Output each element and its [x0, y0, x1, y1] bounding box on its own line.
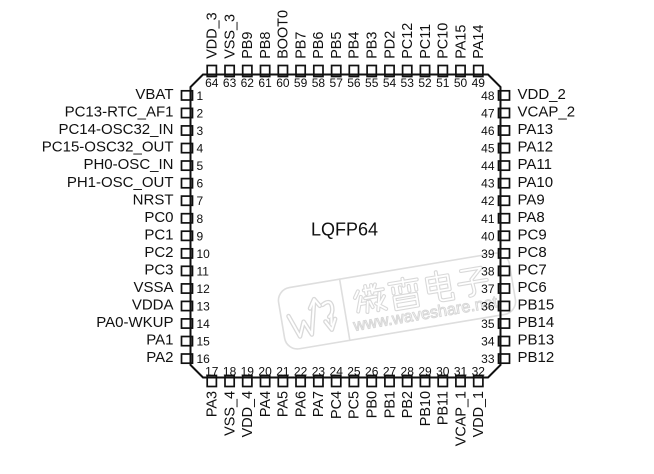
- svg-text:PA10: PA10: [518, 174, 554, 191]
- svg-text:42: 42: [481, 194, 495, 208]
- svg-text:PA12: PA12: [518, 139, 554, 156]
- svg-text:PC8: PC8: [518, 244, 547, 261]
- svg-text:51: 51: [436, 76, 450, 90]
- svg-text:59: 59: [294, 76, 308, 90]
- svg-text:47: 47: [481, 107, 495, 121]
- svg-text:35: 35: [481, 317, 495, 331]
- svg-text:52: 52: [418, 76, 432, 90]
- svg-text:PC14-OSC32_IN: PC14-OSC32_IN: [58, 121, 173, 138]
- svg-text:PA2: PA2: [146, 349, 173, 366]
- svg-text:PA4: PA4: [258, 391, 274, 417]
- svg-text:VDDA: VDDA: [132, 297, 174, 314]
- svg-text:PC5: PC5: [347, 391, 363, 419]
- svg-text:PB1: PB1: [382, 391, 398, 418]
- svg-text:PA8: PA8: [518, 209, 545, 226]
- svg-text:BOOT0: BOOT0: [276, 10, 292, 59]
- svg-text:VSS_3: VSS_3: [222, 14, 238, 59]
- svg-text:25: 25: [347, 365, 361, 379]
- svg-text:PA9: PA9: [518, 191, 545, 208]
- svg-text:11: 11: [197, 264, 210, 278]
- svg-text:PB4: PB4: [347, 32, 363, 59]
- svg-text:56: 56: [347, 76, 361, 90]
- svg-text:PC10: PC10: [436, 23, 452, 59]
- svg-text:40: 40: [481, 229, 495, 243]
- svg-text:PC13-RTC_AF1: PC13-RTC_AF1: [65, 104, 174, 121]
- svg-text:PB5: PB5: [329, 32, 345, 59]
- svg-text:8: 8: [197, 212, 204, 226]
- svg-text:LQFP64: LQFP64: [311, 220, 378, 240]
- svg-text:PC6: PC6: [518, 279, 547, 296]
- svg-text:PC7: PC7: [518, 262, 547, 279]
- svg-text:30: 30: [436, 365, 450, 379]
- svg-text:6: 6: [197, 177, 204, 191]
- svg-text:PB0: PB0: [365, 391, 381, 418]
- svg-text:PA5: PA5: [276, 391, 292, 417]
- svg-text:PC15-OSC32_OUT: PC15-OSC32_OUT: [42, 139, 174, 156]
- svg-text:62: 62: [241, 76, 255, 90]
- svg-text:16: 16: [197, 352, 211, 366]
- svg-text:45: 45: [481, 142, 495, 156]
- svg-text:PB10: PB10: [418, 391, 434, 426]
- svg-text:PB7: PB7: [293, 32, 309, 59]
- svg-text:PH0-OSC_IN: PH0-OSC_IN: [83, 156, 173, 173]
- svg-text:PB12: PB12: [518, 349, 555, 366]
- svg-text:PB8: PB8: [258, 32, 274, 59]
- svg-text:PA7: PA7: [311, 391, 327, 417]
- svg-text:58: 58: [312, 76, 326, 90]
- svg-text:55: 55: [365, 76, 379, 90]
- svg-text:63: 63: [223, 76, 237, 90]
- svg-text:37: 37: [481, 282, 495, 296]
- svg-text:43: 43: [481, 177, 495, 191]
- svg-text:PA14: PA14: [471, 25, 487, 59]
- svg-text:33: 33: [481, 352, 495, 366]
- svg-text:26: 26: [365, 365, 379, 379]
- svg-text:VBAT: VBAT: [135, 86, 173, 103]
- svg-text:VSS_4: VSS_4: [222, 391, 238, 436]
- svg-text:44: 44: [481, 159, 495, 173]
- svg-text:PC2: PC2: [144, 244, 173, 261]
- svg-text:PA15: PA15: [453, 25, 469, 59]
- svg-text:29: 29: [418, 365, 432, 379]
- svg-text:31: 31: [454, 365, 468, 379]
- svg-text:PA0-WKUP: PA0-WKUP: [96, 314, 173, 331]
- svg-text:21: 21: [276, 365, 290, 379]
- svg-text:PC1: PC1: [144, 226, 173, 243]
- svg-text:3: 3: [197, 124, 204, 138]
- svg-text:10: 10: [197, 247, 211, 261]
- svg-text:VCAP_1: VCAP_1: [453, 391, 469, 446]
- svg-text:VSSA: VSSA: [133, 279, 173, 296]
- svg-text:54: 54: [383, 76, 397, 90]
- svg-text:PC4: PC4: [329, 391, 345, 419]
- svg-text:PC0: PC0: [144, 209, 173, 226]
- svg-text:PC11: PC11: [418, 24, 434, 59]
- svg-text:PA6: PA6: [293, 391, 309, 417]
- svg-text:61: 61: [258, 76, 272, 90]
- svg-text:20: 20: [258, 365, 272, 379]
- svg-text:PB11: PB11: [436, 391, 452, 425]
- svg-text:41: 41: [481, 212, 495, 226]
- svg-text:VCAP_2: VCAP_2: [518, 104, 576, 121]
- svg-text:57: 57: [330, 76, 344, 90]
- svg-text:38: 38: [481, 264, 495, 278]
- svg-text:46: 46: [481, 124, 495, 138]
- svg-text:34: 34: [481, 335, 495, 349]
- svg-text:48: 48: [481, 89, 495, 103]
- svg-text:2: 2: [197, 107, 204, 121]
- svg-text:VDD_4: VDD_4: [240, 391, 256, 437]
- svg-text:PD2: PD2: [382, 31, 398, 59]
- svg-text:14: 14: [197, 317, 211, 331]
- svg-text:5: 5: [197, 159, 204, 173]
- svg-text:50: 50: [454, 76, 468, 90]
- svg-text:22: 22: [294, 365, 308, 379]
- svg-text:VDD_3: VDD_3: [205, 12, 221, 58]
- svg-text:17: 17: [205, 365, 219, 379]
- svg-text:PC12: PC12: [400, 23, 416, 59]
- svg-text:NRST: NRST: [133, 191, 174, 208]
- svg-text:23: 23: [312, 365, 326, 379]
- svg-text:4: 4: [197, 142, 204, 156]
- svg-text:64: 64: [205, 76, 219, 90]
- svg-text:PB15: PB15: [518, 297, 555, 314]
- svg-text:PH1-OSC_OUT: PH1-OSC_OUT: [67, 174, 174, 191]
- svg-text:VDD_2: VDD_2: [518, 86, 566, 103]
- svg-text:24: 24: [330, 365, 344, 379]
- svg-text:PC3: PC3: [144, 262, 173, 279]
- svg-text:15: 15: [197, 335, 211, 349]
- svg-text:PA1: PA1: [146, 332, 173, 349]
- svg-text:12: 12: [197, 282, 211, 296]
- svg-text:60: 60: [276, 76, 290, 90]
- svg-text:9: 9: [197, 229, 204, 243]
- svg-text:53: 53: [401, 76, 415, 90]
- svg-text:32: 32: [472, 365, 486, 379]
- svg-text:PB9: PB9: [240, 32, 256, 59]
- svg-text:PA13: PA13: [518, 121, 554, 138]
- svg-text:39: 39: [481, 247, 495, 261]
- svg-text:36: 36: [481, 300, 495, 314]
- svg-text:PB3: PB3: [365, 32, 381, 59]
- svg-text:19: 19: [241, 365, 255, 379]
- svg-text:1: 1: [197, 89, 204, 103]
- svg-text:7: 7: [197, 194, 204, 208]
- svg-text:PB13: PB13: [518, 332, 555, 349]
- svg-text:PA3: PA3: [205, 391, 221, 417]
- svg-text:VDD_1: VDD_1: [471, 391, 487, 437]
- svg-text:28: 28: [401, 365, 415, 379]
- svg-text:PB6: PB6: [311, 32, 327, 59]
- svg-text:PA11: PA11: [518, 156, 552, 173]
- svg-text:PC9: PC9: [518, 226, 547, 243]
- svg-text:27: 27: [383, 365, 397, 379]
- svg-text:13: 13: [197, 300, 211, 314]
- svg-text:PB14: PB14: [518, 314, 555, 331]
- svg-text:PB2: PB2: [400, 391, 416, 418]
- svg-text:18: 18: [223, 365, 237, 379]
